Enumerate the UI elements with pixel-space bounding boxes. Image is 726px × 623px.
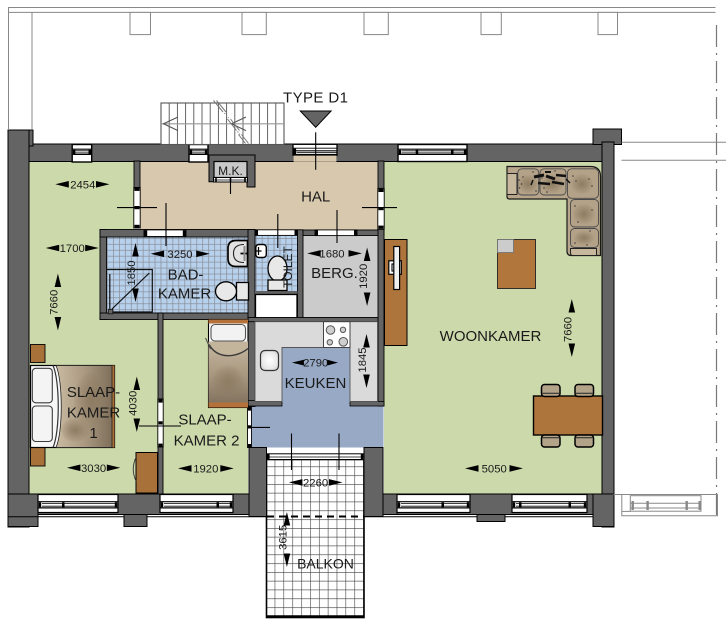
svg-text:2454: 2454 (70, 179, 95, 191)
svg-text:1680: 1680 (319, 249, 344, 261)
svg-text:HAL: HAL (301, 189, 330, 206)
svg-text:4030: 4030 (128, 391, 140, 416)
svg-text:KAMER 2: KAMER 2 (174, 433, 240, 450)
svg-text:BERG.: BERG. (311, 265, 358, 282)
svg-text:1: 1 (89, 425, 97, 442)
svg-text:M.K.: M.K. (218, 164, 243, 178)
svg-text:1850: 1850 (126, 260, 138, 285)
svg-text:3250: 3250 (167, 249, 192, 261)
svg-text:2790: 2790 (303, 358, 328, 370)
svg-text:BALKON: BALKON (297, 556, 354, 572)
svg-text:KAMER: KAMER (67, 405, 121, 422)
svg-text:TOILET: TOILET (281, 245, 295, 287)
svg-text:3030: 3030 (81, 463, 106, 475)
svg-text:7660: 7660 (563, 317, 575, 342)
svg-text:WOONKAMER: WOONKAMER (440, 328, 542, 345)
svg-text:KAMER: KAMER (158, 286, 212, 303)
svg-text:1920: 1920 (358, 264, 370, 289)
svg-text:1845: 1845 (357, 347, 369, 372)
svg-text:1920: 1920 (193, 463, 218, 475)
svg-text:3615: 3615 (278, 525, 290, 550)
svg-text:2260: 2260 (303, 477, 328, 489)
svg-text:1700: 1700 (60, 243, 85, 255)
svg-text:KEUKEN: KEUKEN (285, 375, 347, 392)
svg-text:7660: 7660 (49, 290, 61, 315)
svg-text:TYPE D1: TYPE D1 (283, 90, 348, 107)
svg-text:BAD-: BAD- (168, 267, 204, 284)
svg-text:5050: 5050 (482, 463, 507, 475)
svg-text:SLAAP-: SLAAP- (178, 412, 231, 429)
svg-text:SLAAP-: SLAAP- (67, 384, 120, 401)
